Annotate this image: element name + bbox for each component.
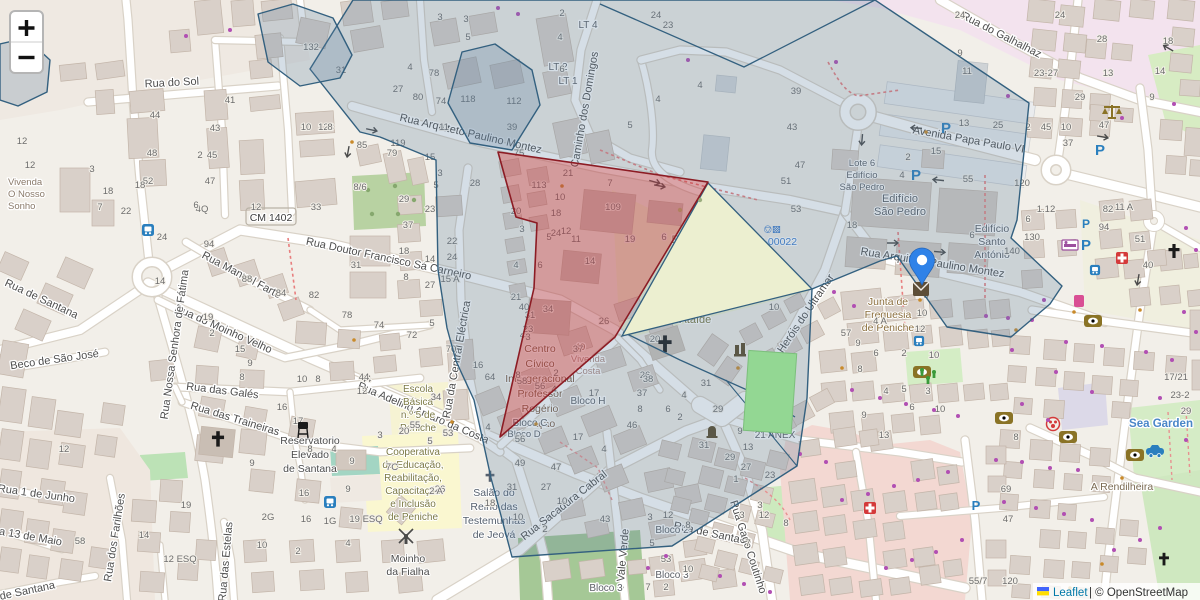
svg-text:Bloco 3: Bloco 3 xyxy=(589,583,623,594)
svg-text:29: 29 xyxy=(1181,406,1192,417)
svg-text:55: 55 xyxy=(410,420,421,431)
svg-text:10: 10 xyxy=(917,308,928,319)
svg-text:23-27: 23-27 xyxy=(1034,68,1058,79)
svg-text:9: 9 xyxy=(349,456,354,467)
svg-text:6: 6 xyxy=(1025,214,1030,225)
svg-text:2: 2 xyxy=(901,348,906,359)
svg-text:12: 12 xyxy=(251,202,262,213)
svg-text:3: 3 xyxy=(739,510,744,521)
svg-text:18: 18 xyxy=(399,246,410,257)
svg-text:9: 9 xyxy=(247,358,252,369)
svg-text:e Inclusão: e Inclusão xyxy=(390,499,436,510)
svg-text:4: 4 xyxy=(345,538,350,549)
svg-text:20: 20 xyxy=(399,426,410,437)
svg-text:57: 57 xyxy=(841,328,852,339)
svg-text:5: 5 xyxy=(427,436,432,447)
svg-text:9: 9 xyxy=(249,458,254,469)
svg-text:24: 24 xyxy=(955,10,966,21)
svg-text:3: 3 xyxy=(377,430,382,441)
svg-text:Reabilitação,: Reabilitação, xyxy=(384,473,442,484)
svg-text:84: 84 xyxy=(276,288,287,299)
svg-text:18: 18 xyxy=(485,498,496,509)
svg-text:8: 8 xyxy=(239,372,244,383)
svg-text:18: 18 xyxy=(103,186,114,197)
svg-text:12: 12 xyxy=(25,160,36,171)
svg-text:P: P xyxy=(972,498,981,513)
svg-text:5: 5 xyxy=(429,318,434,329)
svg-text:2: 2 xyxy=(295,546,300,557)
svg-text:29: 29 xyxy=(399,194,410,205)
svg-text:8: 8 xyxy=(315,374,320,385)
svg-text:29: 29 xyxy=(1075,92,1086,103)
svg-text:40: 40 xyxy=(1143,260,1154,271)
svg-text:2G: 2G xyxy=(262,512,275,523)
svg-text:Moinho: Moinho xyxy=(391,553,426,565)
svg-text:27: 27 xyxy=(425,280,436,291)
svg-text:Leaflet: Leaflet xyxy=(1053,587,1088,599)
svg-text:16: 16 xyxy=(299,488,310,499)
svg-text:9: 9 xyxy=(861,410,866,421)
svg-text:16: 16 xyxy=(277,402,288,413)
svg-text:22: 22 xyxy=(121,206,132,217)
svg-text:24: 24 xyxy=(157,232,168,243)
svg-text:94: 94 xyxy=(204,239,215,250)
svg-text:18: 18 xyxy=(135,180,146,191)
svg-text:55/7: 55/7 xyxy=(969,576,988,587)
svg-text:12: 12 xyxy=(17,136,28,147)
svg-text:O Nosso: O Nosso xyxy=(8,189,45,200)
svg-text:69: 69 xyxy=(1001,484,1012,495)
svg-text:de Peniche: de Peniche xyxy=(388,512,438,523)
svg-text:12 ESQ: 12 ESQ xyxy=(163,554,196,565)
svg-text:12: 12 xyxy=(759,510,770,521)
svg-text:10: 10 xyxy=(257,540,268,551)
svg-text:12: 12 xyxy=(59,444,70,455)
svg-text:de Santana: de Santana xyxy=(283,463,337,475)
svg-text:8/6: 8/6 xyxy=(353,182,366,193)
svg-text:45: 45 xyxy=(1041,122,1052,133)
svg-text:14: 14 xyxy=(139,530,150,541)
svg-text:19: 19 xyxy=(203,312,214,323)
svg-text:78: 78 xyxy=(342,310,353,321)
svg-text:15: 15 xyxy=(235,344,246,355)
svg-text:Vivenda: Vivenda xyxy=(8,177,43,188)
svg-text:8: 8 xyxy=(327,122,332,133)
svg-text:43: 43 xyxy=(210,123,221,134)
svg-text:da Fialha: da Fialha xyxy=(386,566,429,578)
svg-text:16: 16 xyxy=(301,514,312,525)
svg-text:6: 6 xyxy=(193,200,198,211)
svg-text:10: 10 xyxy=(929,350,940,361)
svg-text:34: 34 xyxy=(431,392,442,403)
svg-text:37: 37 xyxy=(1063,138,1074,149)
svg-text:12: 12 xyxy=(357,386,368,397)
svg-text:13: 13 xyxy=(1103,68,1114,79)
svg-text:51: 51 xyxy=(1135,234,1146,245)
svg-text:33: 33 xyxy=(311,202,322,213)
svg-text:5: 5 xyxy=(901,384,906,395)
svg-text:P: P xyxy=(1095,142,1105,159)
svg-text:82: 82 xyxy=(1103,204,1114,215)
svg-text:2: 2 xyxy=(197,150,202,161)
svg-text:82: 82 xyxy=(309,290,320,301)
svg-text:8: 8 xyxy=(1013,432,1018,443)
svg-text:88: 88 xyxy=(242,274,253,285)
svg-text:53: 53 xyxy=(443,428,454,439)
svg-text:74: 74 xyxy=(374,320,385,331)
svg-text:44: 44 xyxy=(150,110,161,121)
svg-text:24: 24 xyxy=(1055,10,1066,21)
svg-text:37: 37 xyxy=(403,220,414,231)
svg-text:de Peniche: de Peniche xyxy=(862,322,915,334)
svg-text:23: 23 xyxy=(425,204,436,215)
svg-text:3: 3 xyxy=(925,386,930,397)
svg-text:P: P xyxy=(1082,217,1090,231)
svg-text:12: 12 xyxy=(915,324,926,335)
svg-text:6: 6 xyxy=(873,348,878,359)
svg-text:47: 47 xyxy=(1003,514,1014,525)
svg-text:10: 10 xyxy=(301,122,312,133)
svg-text:| © OpenStreetMap: | © OpenStreetMap xyxy=(1089,587,1188,599)
svg-text:4 A: 4 A xyxy=(873,316,887,327)
svg-text:14: 14 xyxy=(155,276,166,287)
svg-text:Junta de: Junta de xyxy=(868,296,908,308)
svg-text:14: 14 xyxy=(1155,66,1166,77)
svg-text:41: 41 xyxy=(225,95,236,106)
svg-text:8: 8 xyxy=(783,518,788,529)
svg-text:120: 120 xyxy=(1002,576,1018,587)
svg-text:72: 72 xyxy=(407,330,418,341)
svg-text:58: 58 xyxy=(75,536,86,547)
svg-text:94: 94 xyxy=(1099,222,1110,233)
svg-text:9: 9 xyxy=(345,484,350,495)
svg-text:2: 2 xyxy=(663,582,668,593)
svg-text:28: 28 xyxy=(1097,34,1108,45)
svg-text:8: 8 xyxy=(403,272,408,283)
svg-text:10: 10 xyxy=(1061,122,1072,133)
svg-text:9: 9 xyxy=(855,338,860,349)
svg-text:19: 19 xyxy=(181,500,192,511)
svg-text:10: 10 xyxy=(683,564,694,575)
svg-text:44: 44 xyxy=(359,372,370,383)
svg-text:47: 47 xyxy=(205,176,216,187)
svg-text:8: 8 xyxy=(307,444,312,455)
svg-text:6: 6 xyxy=(909,402,914,413)
svg-text:14: 14 xyxy=(425,254,436,265)
svg-text:3: 3 xyxy=(757,500,762,511)
svg-text:7: 7 xyxy=(645,582,650,593)
svg-text:130: 130 xyxy=(1024,232,1040,243)
svg-text:2: 2 xyxy=(209,328,214,339)
svg-text:Freguesia: Freguesia xyxy=(865,309,912,321)
svg-text:1G: 1G xyxy=(324,516,337,527)
svg-text:79: 79 xyxy=(387,148,398,159)
svg-text:11 A: 11 A xyxy=(1115,202,1134,213)
svg-text:47: 47 xyxy=(1099,120,1110,131)
svg-text:Básica: Básica xyxy=(403,397,433,408)
svg-text:P: P xyxy=(1081,237,1091,254)
svg-text:10: 10 xyxy=(297,374,308,385)
svg-text:13: 13 xyxy=(879,430,890,441)
svg-text:17/21: 17/21 xyxy=(1164,372,1188,383)
svg-text:7: 7 xyxy=(97,202,102,213)
svg-text:31: 31 xyxy=(351,260,362,271)
svg-text:48: 48 xyxy=(147,148,158,159)
svg-text:A Rendilheira: A Rendilheira xyxy=(1091,481,1154,493)
svg-text:19 ESQ: 19 ESQ xyxy=(349,514,382,525)
svg-text:9: 9 xyxy=(1149,92,1154,103)
svg-text:Sea Garden: Sea Garden xyxy=(1129,418,1193,430)
svg-text:23-2: 23-2 xyxy=(1170,390,1189,401)
svg-text:3: 3 xyxy=(89,164,94,175)
svg-text:10: 10 xyxy=(935,404,946,415)
svg-text:85: 85 xyxy=(357,140,368,151)
svg-text:45: 45 xyxy=(207,150,218,161)
svg-text:8: 8 xyxy=(857,364,862,375)
svg-text:7C: 7C xyxy=(386,462,398,473)
svg-text:7: 7 xyxy=(745,538,750,549)
svg-text:4: 4 xyxy=(331,444,336,455)
svg-text:Sonho: Sonho xyxy=(8,201,35,212)
svg-text:Escola: Escola xyxy=(403,384,433,395)
svg-text:Cooperativa: Cooperativa xyxy=(386,447,440,458)
svg-text:2 A: 2 A xyxy=(429,486,443,497)
svg-text:1.12: 1.12 xyxy=(1037,204,1056,215)
svg-text:4: 4 xyxy=(883,386,888,397)
